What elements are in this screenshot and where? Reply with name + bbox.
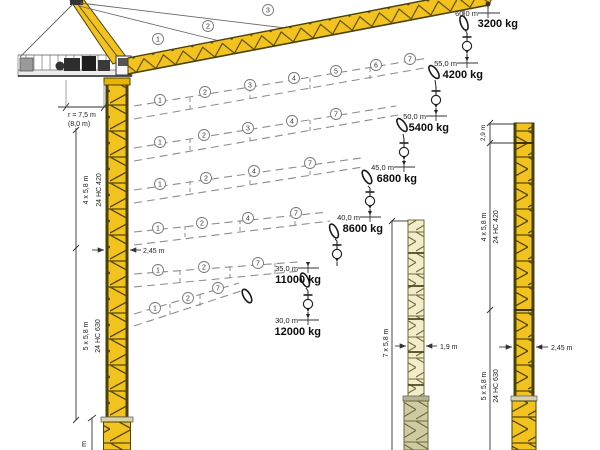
counterjib-radius-label: r = 7,5 m bbox=[68, 112, 96, 119]
right-tower-top-label: 2,9 m bbox=[480, 125, 487, 141]
trolley-icon bbox=[240, 288, 253, 304]
jib-section-badge: 3 bbox=[263, 5, 274, 16]
hoist-machinery bbox=[64, 58, 80, 71]
dashed-jib-row-45m: 1 2 4 7 bbox=[134, 158, 374, 204]
radius-label: 60,0 m bbox=[455, 9, 478, 18]
section-number: 2 bbox=[202, 265, 206, 272]
section-number: 2 bbox=[200, 221, 204, 228]
radius-label: 55,0 m bbox=[434, 59, 457, 68]
counterweight bbox=[20, 58, 33, 71]
tower-base-cap bbox=[101, 417, 133, 422]
section-number: 1 bbox=[156, 226, 160, 233]
jib-section-badge: 2 bbox=[203, 21, 214, 32]
right-tower-type-label: 24 HC 630 bbox=[493, 369, 500, 403]
right-tower-type-label: 24 HC 420 bbox=[493, 210, 500, 244]
section-number: 4 bbox=[246, 216, 250, 223]
right-tower-sections-label: 4 x 5,8 m bbox=[481, 212, 488, 241]
hook-icon bbox=[365, 188, 374, 213]
capacity-annotation-55m: 55,0 m 4200 kg bbox=[431, 57, 483, 112]
section-number: 2 bbox=[186, 296, 190, 303]
capacity-label: 6800 kg bbox=[377, 173, 417, 185]
capacity-label: 3200 kg bbox=[478, 18, 518, 30]
capacity-label: 11000 kg bbox=[275, 274, 321, 286]
capacity-annotation-30m: 30,0 m 12000 kg bbox=[275, 314, 321, 338]
section-number: 7 bbox=[216, 286, 220, 293]
section-number: 3 bbox=[266, 8, 270, 15]
dashed-jib-row-50m: 1 2 3 4 7 bbox=[134, 106, 409, 161]
right-tower-sections-label: 5 x 5,8 m bbox=[481, 371, 488, 400]
main-tower bbox=[101, 78, 133, 450]
radius-label: 35,0 m bbox=[275, 264, 298, 273]
section-number: 7 bbox=[294, 211, 298, 218]
capacity-label: 4200 kg bbox=[443, 69, 483, 81]
section-number: 1 bbox=[158, 182, 162, 189]
tower-type-label: 24 HC 420 bbox=[96, 173, 103, 207]
section-number: 1 bbox=[156, 268, 160, 275]
section-number: 7 bbox=[408, 57, 412, 64]
trolley-icon bbox=[328, 223, 341, 239]
capacity-annotation-35m: 35,0 m 11000 kg bbox=[275, 262, 321, 316]
radius-label: 45,0 m bbox=[371, 163, 394, 172]
hook-icon bbox=[462, 33, 471, 58]
capacity-annotation-40m: 40,0 m 8600 kg bbox=[332, 211, 383, 266]
hoist-machinery bbox=[82, 56, 96, 71]
middle-tower-sections-label: 7 x 5,8 m bbox=[383, 328, 390, 357]
right-tower-width-label: 2,45 m bbox=[551, 345, 573, 352]
winch-drum bbox=[56, 62, 65, 71]
middle-tower-base-cap bbox=[403, 396, 429, 401]
section-number: 1 bbox=[158, 98, 162, 105]
counterjib-radius-alt-label: (8,0 m) bbox=[68, 121, 90, 128]
section-number: 4 bbox=[292, 76, 296, 83]
middle-tower: 7 x 5,8 m 1,9 m bbox=[383, 218, 458, 450]
section-number: 5 bbox=[334, 69, 338, 76]
dashed-jib-row-30m: 1 2 7 bbox=[134, 283, 254, 327]
section-number: 2 bbox=[203, 90, 207, 97]
radius-label: 50,0 m bbox=[403, 112, 426, 121]
section-number: 2 bbox=[202, 133, 206, 140]
hook-icon bbox=[399, 139, 408, 164]
right-tower-base-cap bbox=[511, 396, 537, 401]
cutoff-dimension-label: m bbox=[81, 441, 88, 447]
capacity-label: 12000 kg bbox=[275, 326, 321, 338]
section-number: 1 bbox=[153, 306, 157, 313]
right-tower: 2,9 m 4 x 5,8 m 24 HC 420 5 x 5,8 m 24 H… bbox=[480, 120, 573, 450]
section-number: 7 bbox=[256, 261, 260, 268]
section-number: 2 bbox=[206, 24, 210, 31]
capacity-annotation-60m: 60,0 m 3200 kg bbox=[455, 5, 518, 58]
section-number: 1 bbox=[156, 37, 160, 44]
hook-icon bbox=[332, 241, 341, 266]
slewing-unit bbox=[104, 78, 130, 85]
section-number: 7 bbox=[334, 112, 338, 119]
jib-pendant bbox=[80, 3, 310, 31]
section-number: 1 bbox=[158, 140, 162, 147]
diagram-canvas: 1 2 3 1 2 3 4 5 6 7 1 2 3 4 7 1 2 4 7 bbox=[0, 0, 600, 450]
capacity-label: 8600 kg bbox=[343, 223, 383, 235]
tower-width-label: 2,45 m bbox=[143, 248, 165, 255]
tower-sections-label: 5 x 5,8 m bbox=[83, 321, 90, 350]
section-number: 3 bbox=[246, 126, 250, 133]
jib-section-badge: 1 bbox=[153, 34, 164, 45]
hook-icon bbox=[303, 291, 312, 316]
counter-jib-pendant bbox=[20, 4, 73, 57]
tower-sections-label: 4 x 5,8 m bbox=[83, 175, 90, 204]
section-number: 4 bbox=[290, 119, 294, 126]
tower-type-label: 24 HC 630 bbox=[95, 319, 102, 353]
hook-icon bbox=[431, 87, 440, 112]
capacity-annotation-50m: 50,0 m 5400 kg bbox=[399, 110, 449, 164]
crane-load-diagram: 1 2 3 1 2 3 4 5 6 7 1 2 3 4 7 1 2 4 7 bbox=[0, 0, 600, 450]
middle-tower-width-label: 1,9 m bbox=[440, 344, 458, 351]
section-number: 3 bbox=[248, 83, 252, 90]
capacity-label: 5400 kg bbox=[409, 122, 449, 134]
hoist-machinery bbox=[98, 60, 110, 71]
radius-label: 30,0 m bbox=[275, 316, 298, 325]
section-number: 6 bbox=[374, 63, 378, 70]
section-number: 2 bbox=[204, 176, 208, 183]
section-number: 7 bbox=[308, 161, 312, 168]
radius-label: 40,0 m bbox=[337, 213, 360, 222]
dashed-jib-row-40m: 1 2 4 7 bbox=[134, 208, 340, 246]
capacity-annotation-45m: 45,0 m 6800 kg bbox=[365, 161, 417, 213]
section-number: 4 bbox=[252, 169, 256, 176]
